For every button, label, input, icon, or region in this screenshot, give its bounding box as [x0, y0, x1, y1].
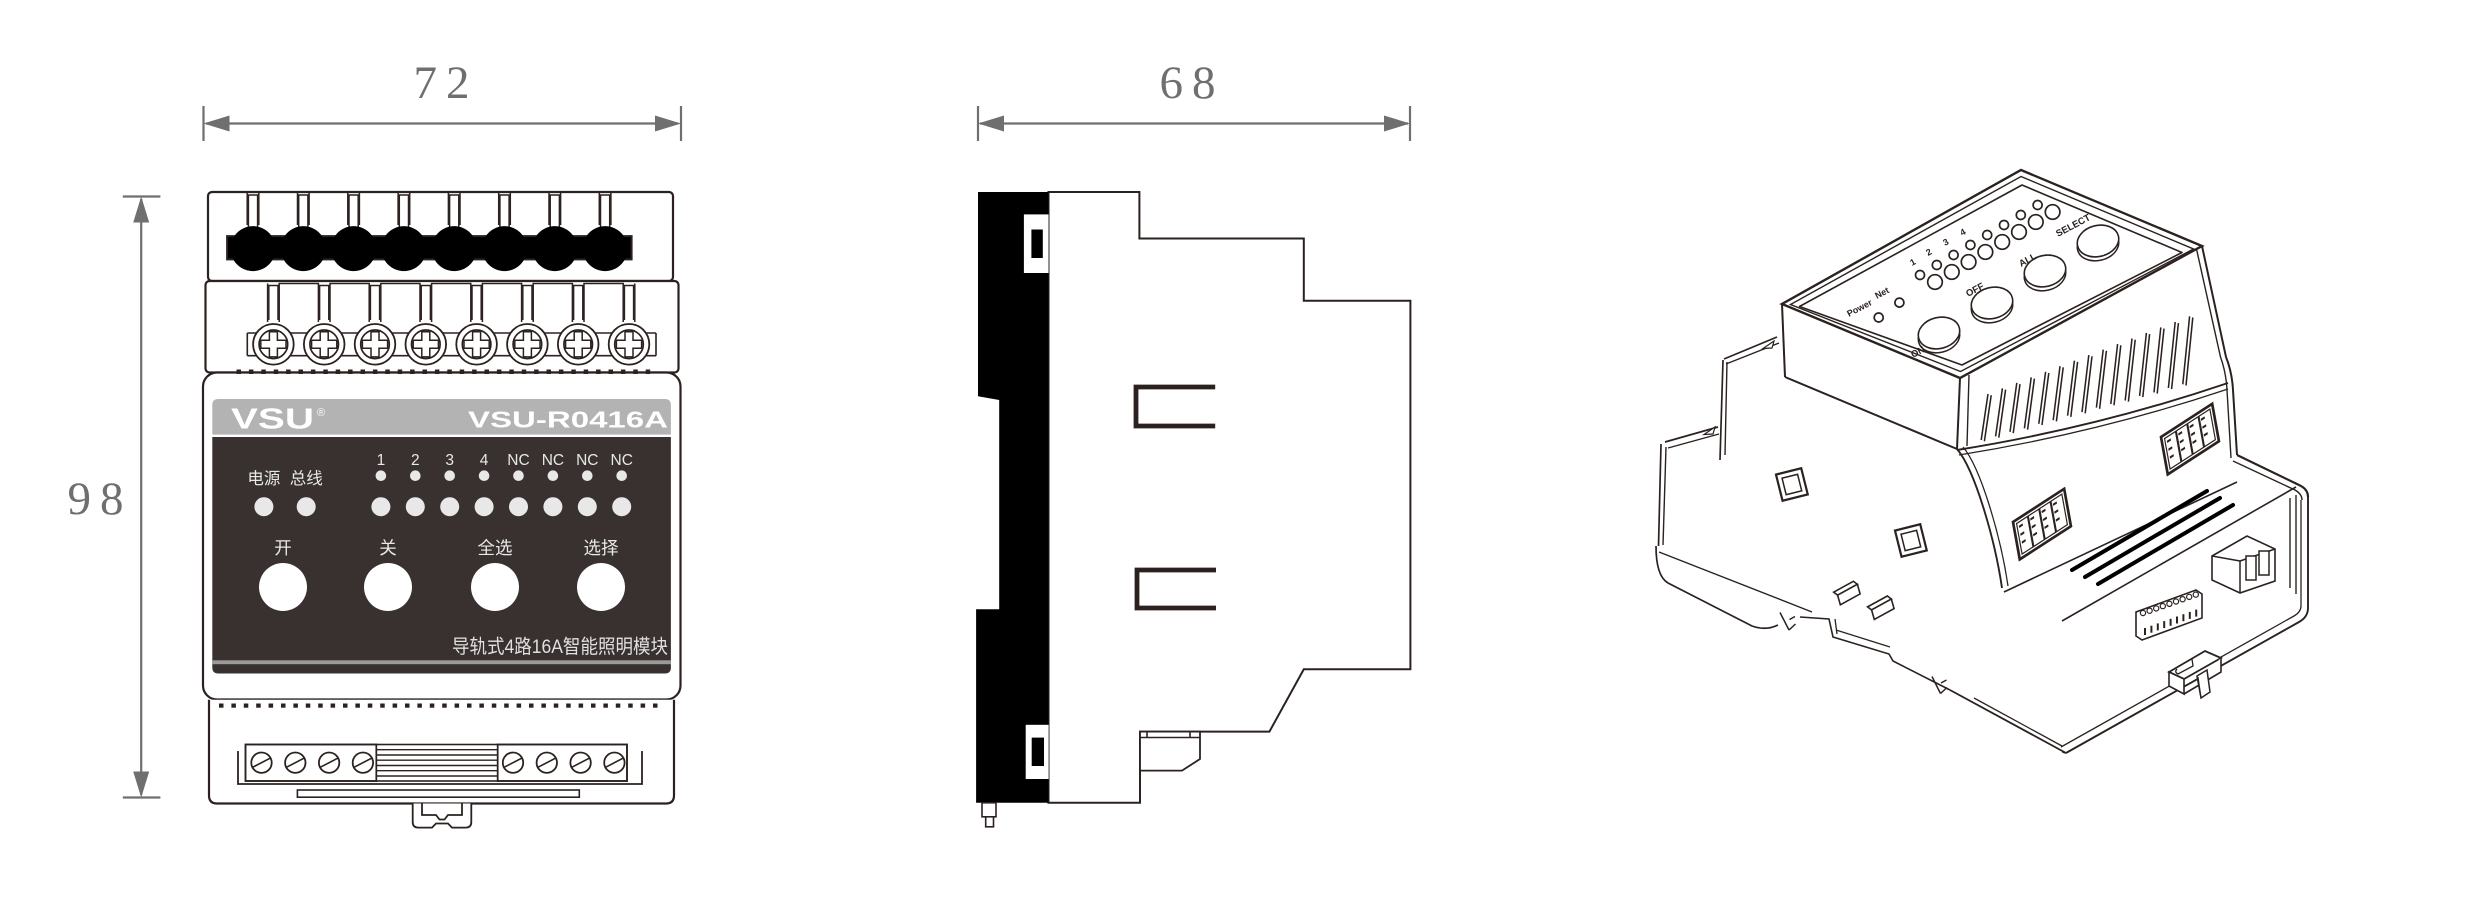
svg-text:NC: NC [576, 452, 598, 469]
svg-text:开: 开 [274, 538, 292, 558]
svg-text:总线: 总线 [290, 469, 323, 488]
svg-text:1: 1 [377, 452, 386, 469]
svg-text:68: 68 [1160, 57, 1225, 109]
svg-text:电源: 电源 [247, 469, 280, 488]
svg-text:VSU-R0416A: VSU-R0416A [468, 407, 668, 433]
svg-text:NC: NC [507, 452, 529, 469]
svg-text:NC: NC [611, 452, 633, 469]
svg-text:全选: 全选 [478, 538, 513, 558]
svg-text:导轨式4路16A智能照明模块: 导轨式4路16A智能照明模块 [452, 636, 668, 658]
svg-text:3: 3 [445, 452, 454, 469]
svg-text:2: 2 [411, 452, 420, 469]
svg-text:NC: NC [542, 452, 564, 469]
svg-text:选择: 选择 [584, 538, 619, 558]
svg-text:关: 关 [379, 538, 397, 558]
svg-text:72: 72 [414, 57, 479, 109]
svg-text:®: ® [317, 407, 325, 419]
svg-text:98: 98 [68, 473, 133, 525]
svg-text:4: 4 [480, 452, 489, 469]
svg-text:VSU: VSU [231, 404, 314, 436]
